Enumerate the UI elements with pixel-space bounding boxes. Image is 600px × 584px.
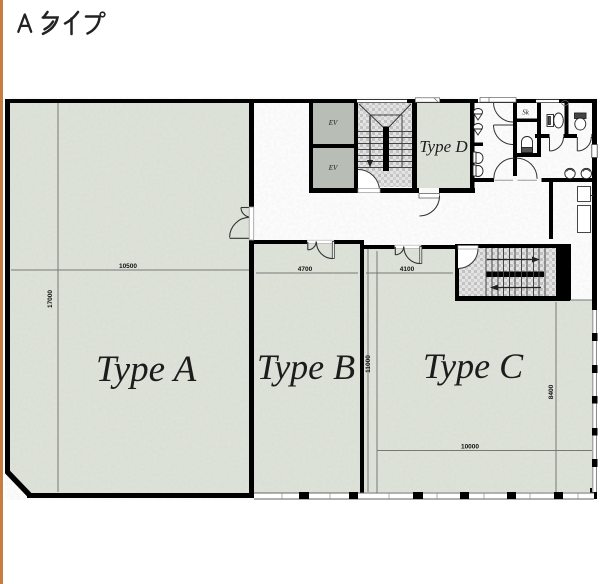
svg-text:10500: 10500 xyxy=(119,263,137,270)
svg-text:Sk: Sk xyxy=(522,109,530,117)
svg-text:10000: 10000 xyxy=(461,444,479,451)
svg-text:4100: 4100 xyxy=(400,266,415,273)
svg-text:11000: 11000 xyxy=(365,355,372,373)
svg-text:Type A: Type A xyxy=(96,349,197,390)
svg-text:8400: 8400 xyxy=(548,384,555,399)
svg-text:EV: EV xyxy=(328,164,338,172)
svg-text:Type B: Type B xyxy=(257,347,355,387)
svg-text:EV: EV xyxy=(328,119,338,127)
svg-text:17000: 17000 xyxy=(47,290,54,308)
svg-text:Type C: Type C xyxy=(423,346,524,386)
svg-text:4700: 4700 xyxy=(298,266,313,273)
svg-text:Type D: Type D xyxy=(419,137,468,156)
